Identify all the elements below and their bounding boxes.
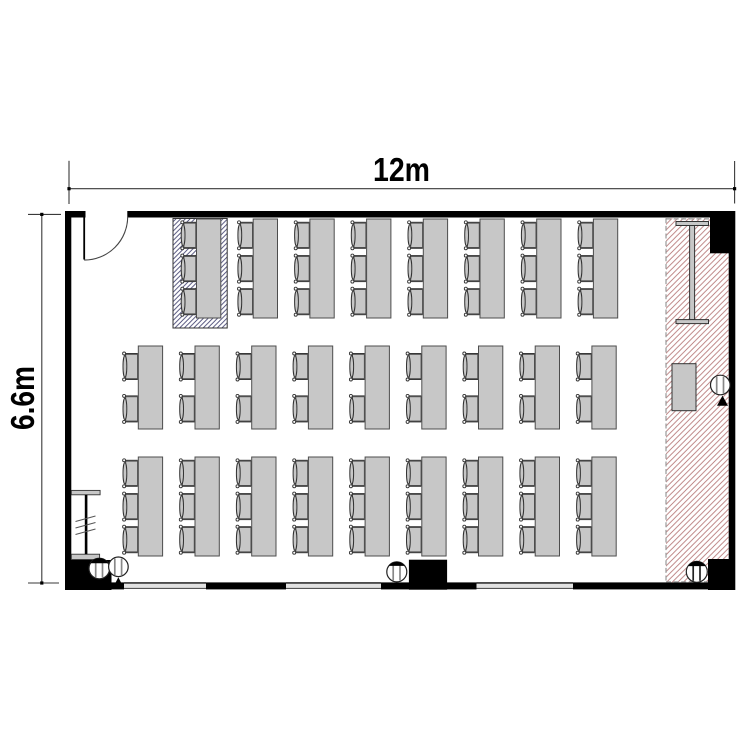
svg-text:12m: 12m	[373, 151, 430, 188]
svg-text:6.6m: 6.6m	[4, 366, 41, 430]
